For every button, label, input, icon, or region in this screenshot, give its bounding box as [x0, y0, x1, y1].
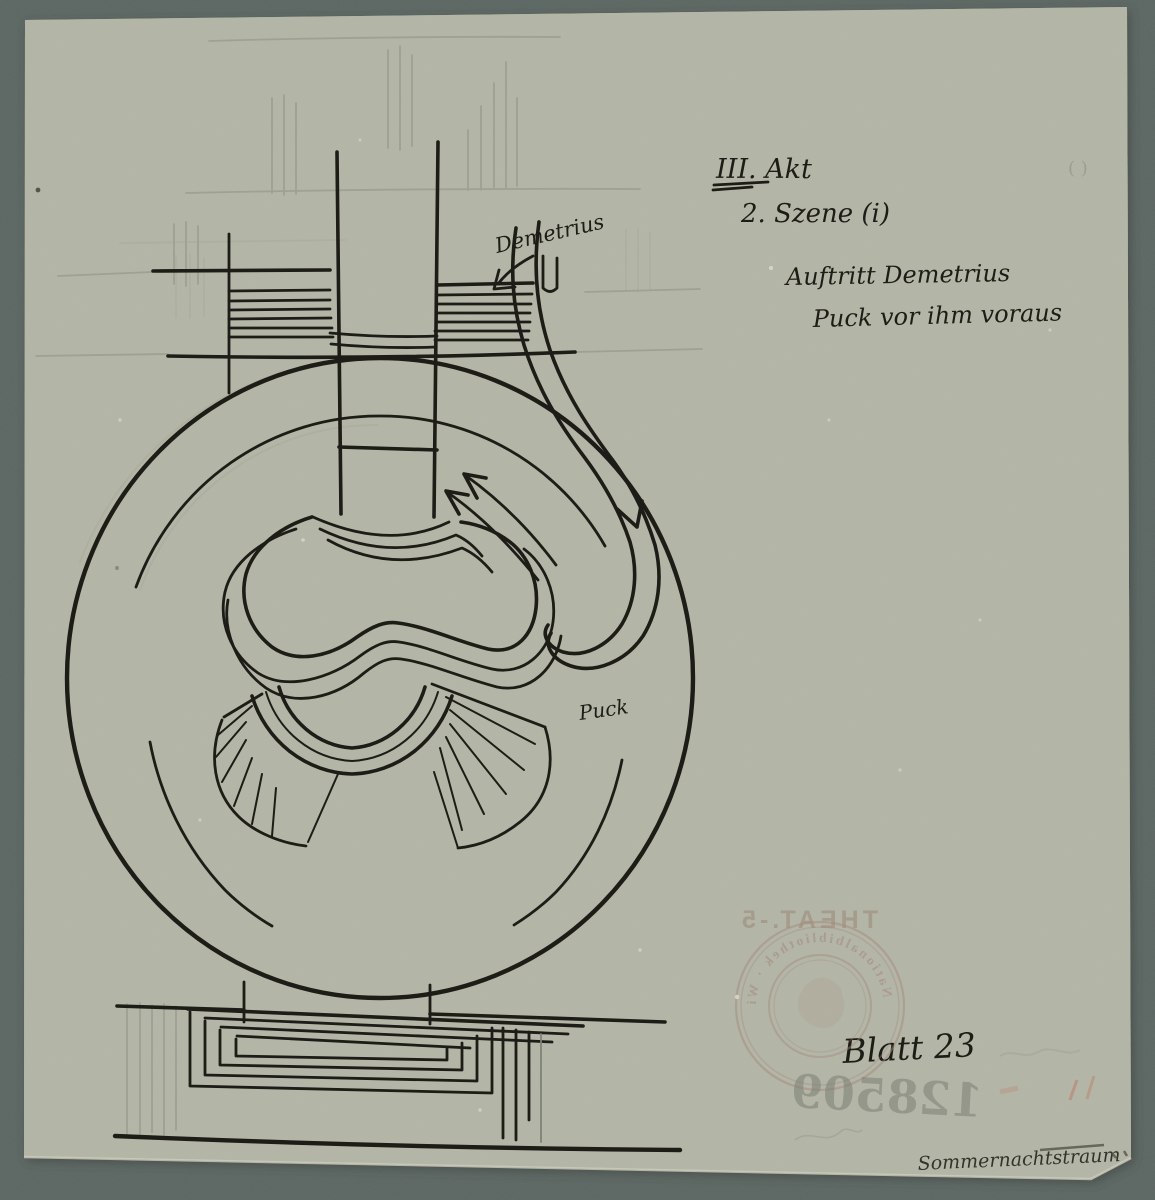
pencil-paren-mark: ( ): [1068, 158, 1088, 179]
act-note: III. Akt: [715, 154, 812, 185]
scene-note: 2. Szene (i): [740, 199, 890, 229]
paper-sheet: [24, 7, 1131, 1179]
scanned-stage-sketch: III. Akt 2. Szene (i) Auftritt Demetrius…: [0, 0, 1155, 1200]
inventory-number-mirrored: 128509: [790, 1064, 985, 1128]
stamp-emblem: [798, 979, 844, 1028]
entrance-note-line1: Auftritt Demetrius: [784, 259, 1011, 291]
sheet-number: Blatt 23: [840, 1025, 976, 1071]
